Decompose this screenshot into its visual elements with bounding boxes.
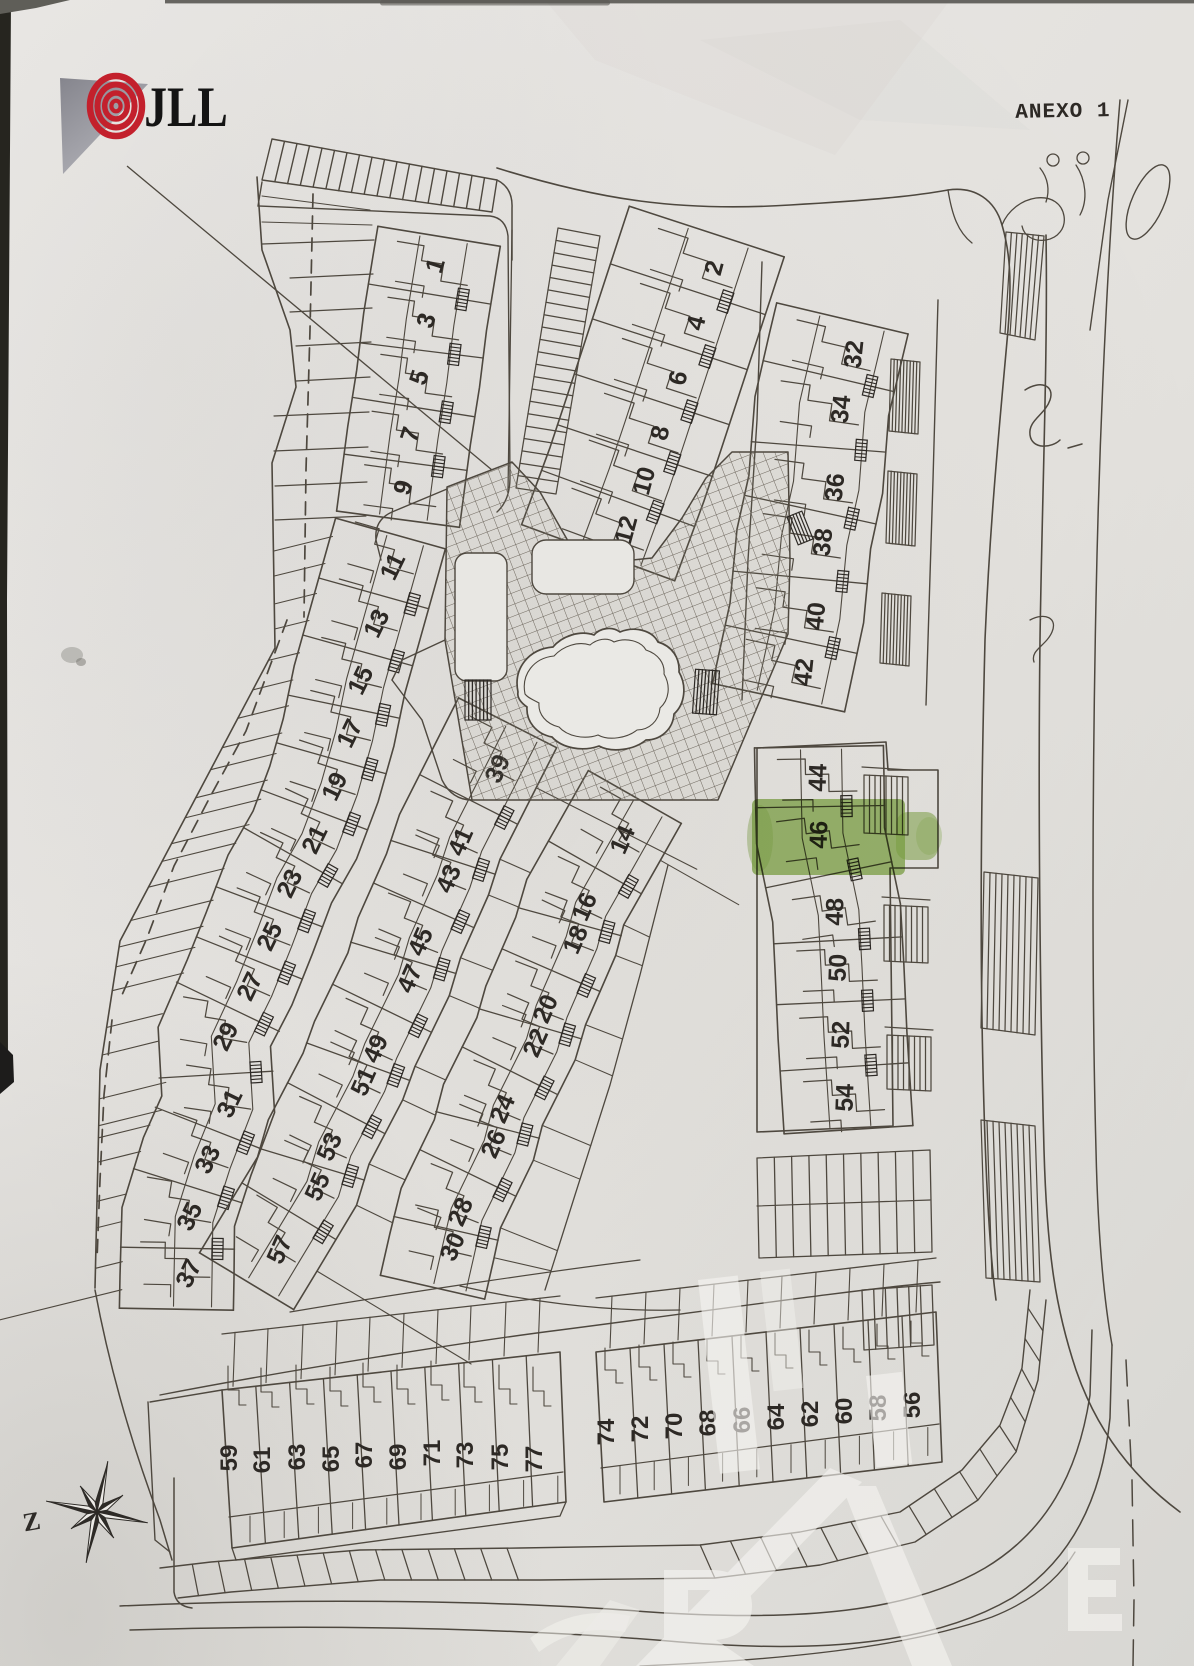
svg-text:75: 75	[487, 1444, 514, 1471]
svg-text:65: 65	[318, 1446, 345, 1473]
svg-text:72: 72	[627, 1416, 654, 1443]
svg-text:69: 69	[385, 1444, 412, 1471]
svg-text:ANEXO 1: ANEXO 1	[1015, 100, 1111, 125]
svg-text:52: 52	[827, 1020, 856, 1049]
svg-text:59: 59	[216, 1445, 243, 1472]
svg-text:50: 50	[824, 953, 853, 982]
svg-text:60: 60	[831, 1398, 858, 1425]
svg-text:44: 44	[804, 763, 833, 792]
svg-text:40: 40	[801, 601, 832, 632]
svg-text:77: 77	[521, 1446, 548, 1473]
svg-text:64: 64	[763, 1403, 790, 1430]
svg-text:34: 34	[826, 394, 857, 425]
svg-text:48: 48	[821, 897, 850, 926]
svg-text:67: 67	[351, 1442, 378, 1469]
svg-text:36: 36	[820, 472, 851, 503]
svg-text:61: 61	[249, 1447, 276, 1474]
svg-text:71: 71	[419, 1440, 446, 1467]
svg-text:70: 70	[661, 1413, 688, 1440]
svg-text:32: 32	[839, 339, 870, 370]
svg-text:42: 42	[789, 657, 820, 688]
svg-text:74: 74	[593, 1418, 620, 1445]
svg-text:38: 38	[808, 527, 839, 558]
svg-text:63: 63	[284, 1444, 311, 1471]
svg-text:73: 73	[452, 1442, 479, 1469]
svg-text:62: 62	[797, 1401, 824, 1428]
svg-text:JLL: JLL	[144, 76, 228, 139]
svg-text:54: 54	[831, 1083, 860, 1112]
